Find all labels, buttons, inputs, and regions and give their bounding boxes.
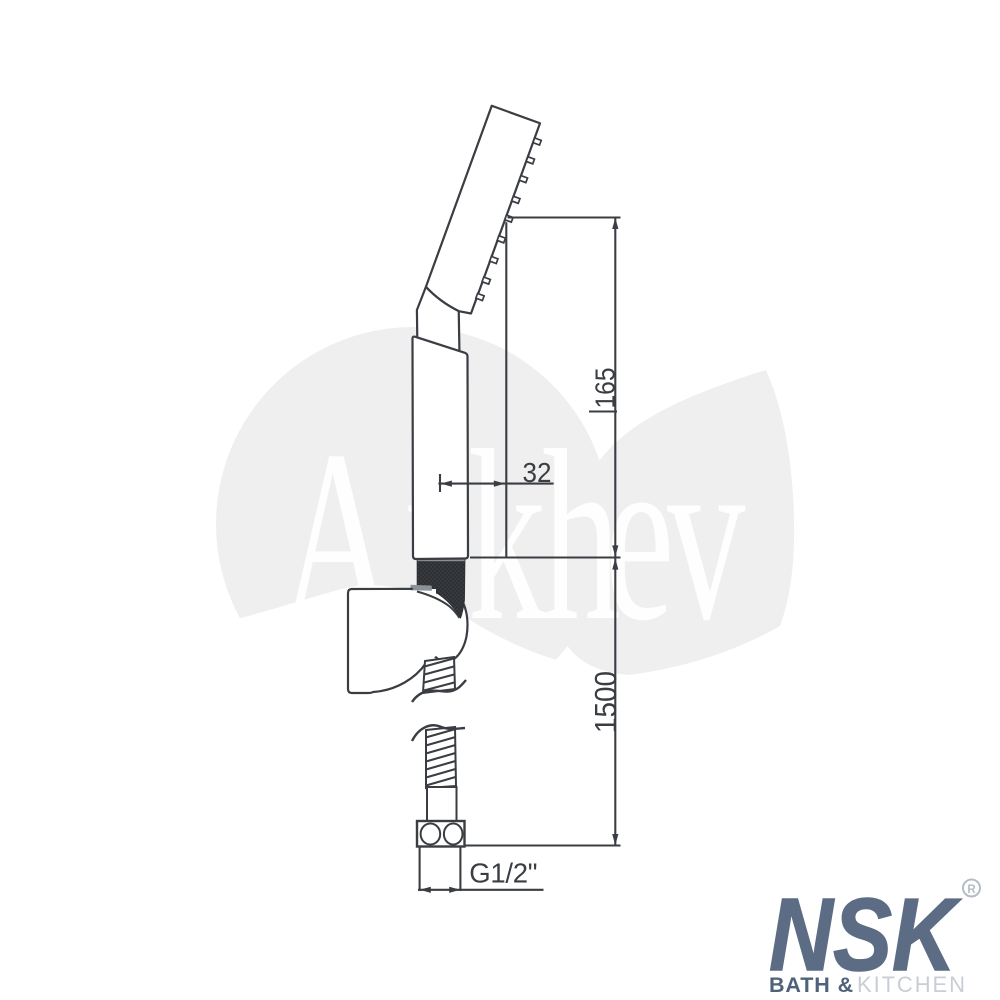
svg-text:32: 32 (523, 457, 552, 488)
svg-text:165: 165 (589, 367, 621, 408)
svg-text:G1/2": G1/2" (469, 858, 537, 889)
svg-text:BATH &: BATH & (769, 973, 854, 997)
svg-text:KITCHEN: KITCHEN (857, 972, 967, 997)
svg-text:R: R (967, 884, 976, 896)
svg-text:1500: 1500 (589, 671, 624, 733)
